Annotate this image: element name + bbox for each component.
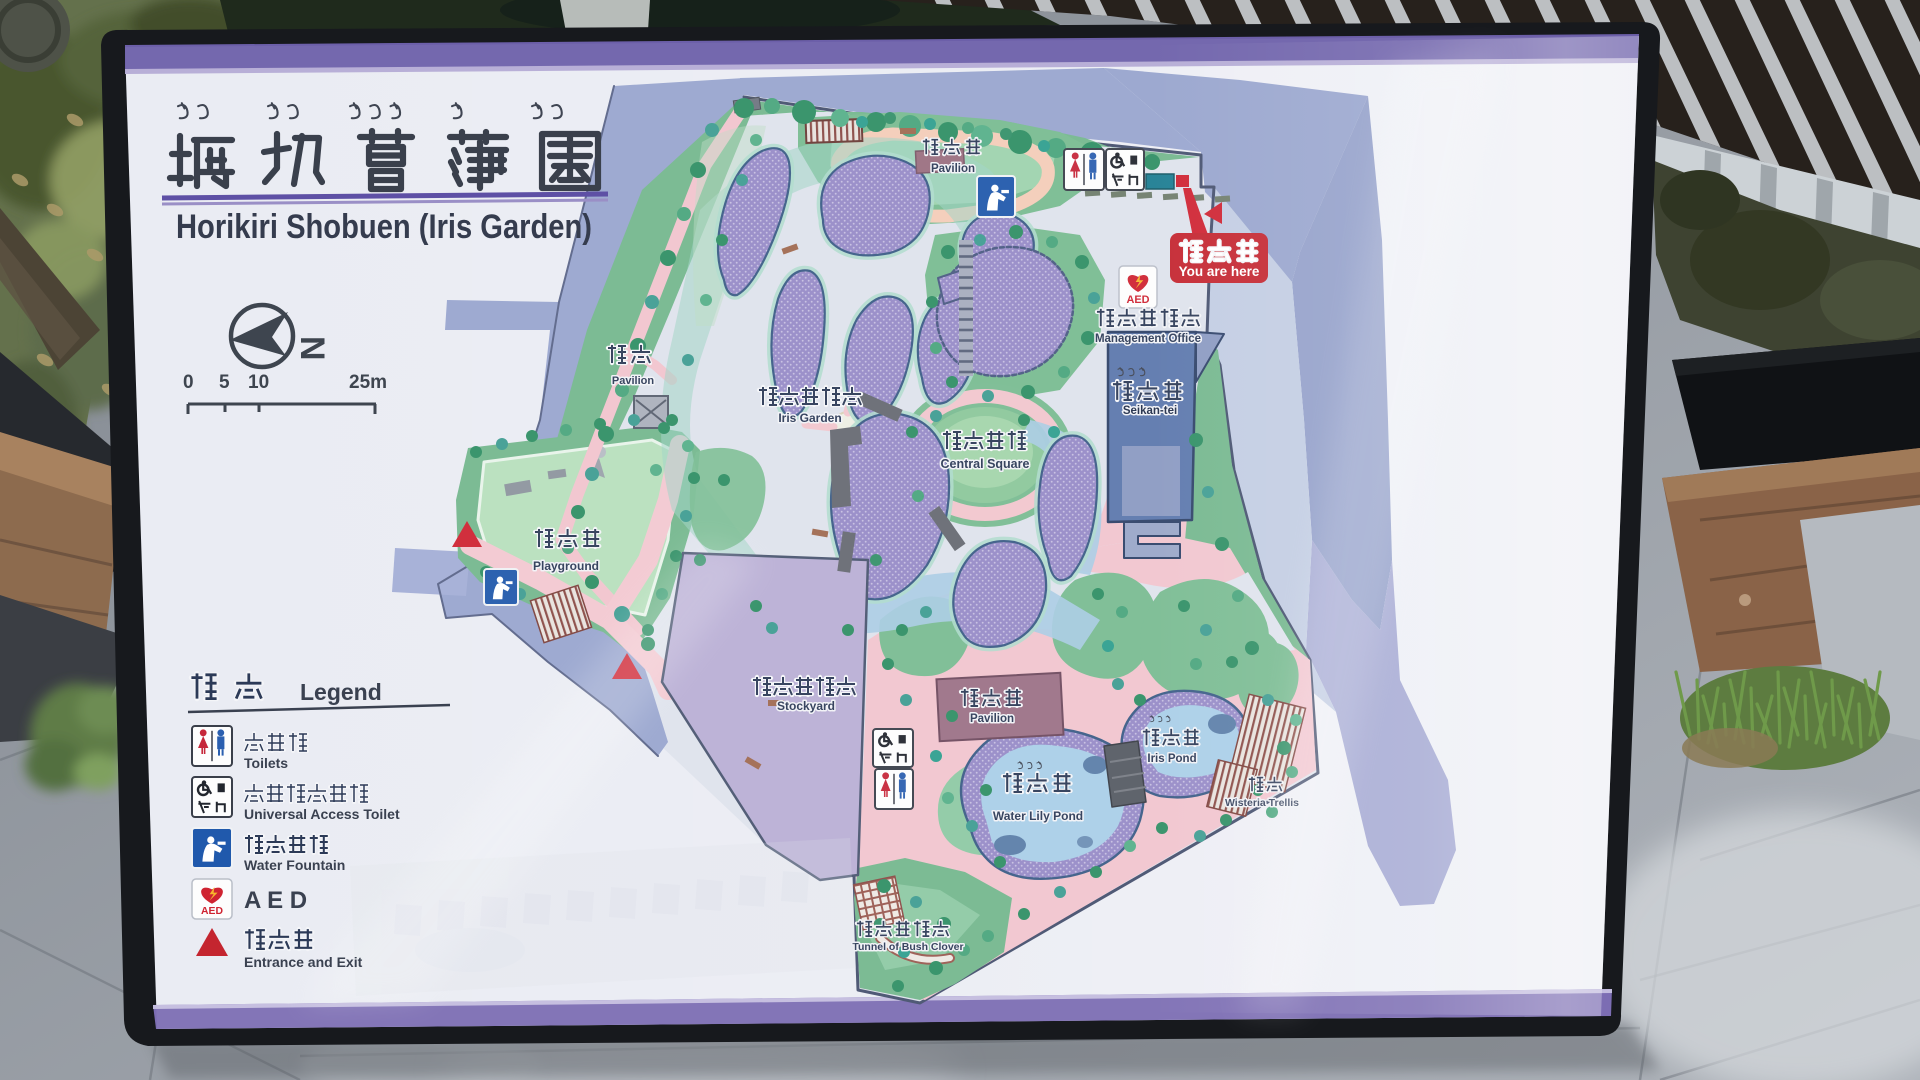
svg-text:Toilets: Toilets xyxy=(244,755,288,771)
svg-text:A E D: A E D xyxy=(244,887,307,914)
svg-text:N: N xyxy=(293,336,331,361)
svg-text:Entrance and Exit: Entrance and Exit xyxy=(244,954,363,970)
svg-text:5: 5 xyxy=(219,372,230,393)
svg-text:Universal Access Toilet: Universal Access Toilet xyxy=(244,806,400,822)
svg-text:AED: AED xyxy=(201,906,223,917)
svg-text:0: 0 xyxy=(183,372,194,393)
svg-text:Water Fountain: Water Fountain xyxy=(244,857,345,873)
svg-text:10: 10 xyxy=(248,372,269,393)
svg-text:Legend: Legend xyxy=(300,679,382,705)
svg-text:25m: 25m xyxy=(349,372,387,393)
svg-text:Horikiri Shobuen (Iris Garden): Horikiri Shobuen (Iris Garden) xyxy=(176,208,592,246)
